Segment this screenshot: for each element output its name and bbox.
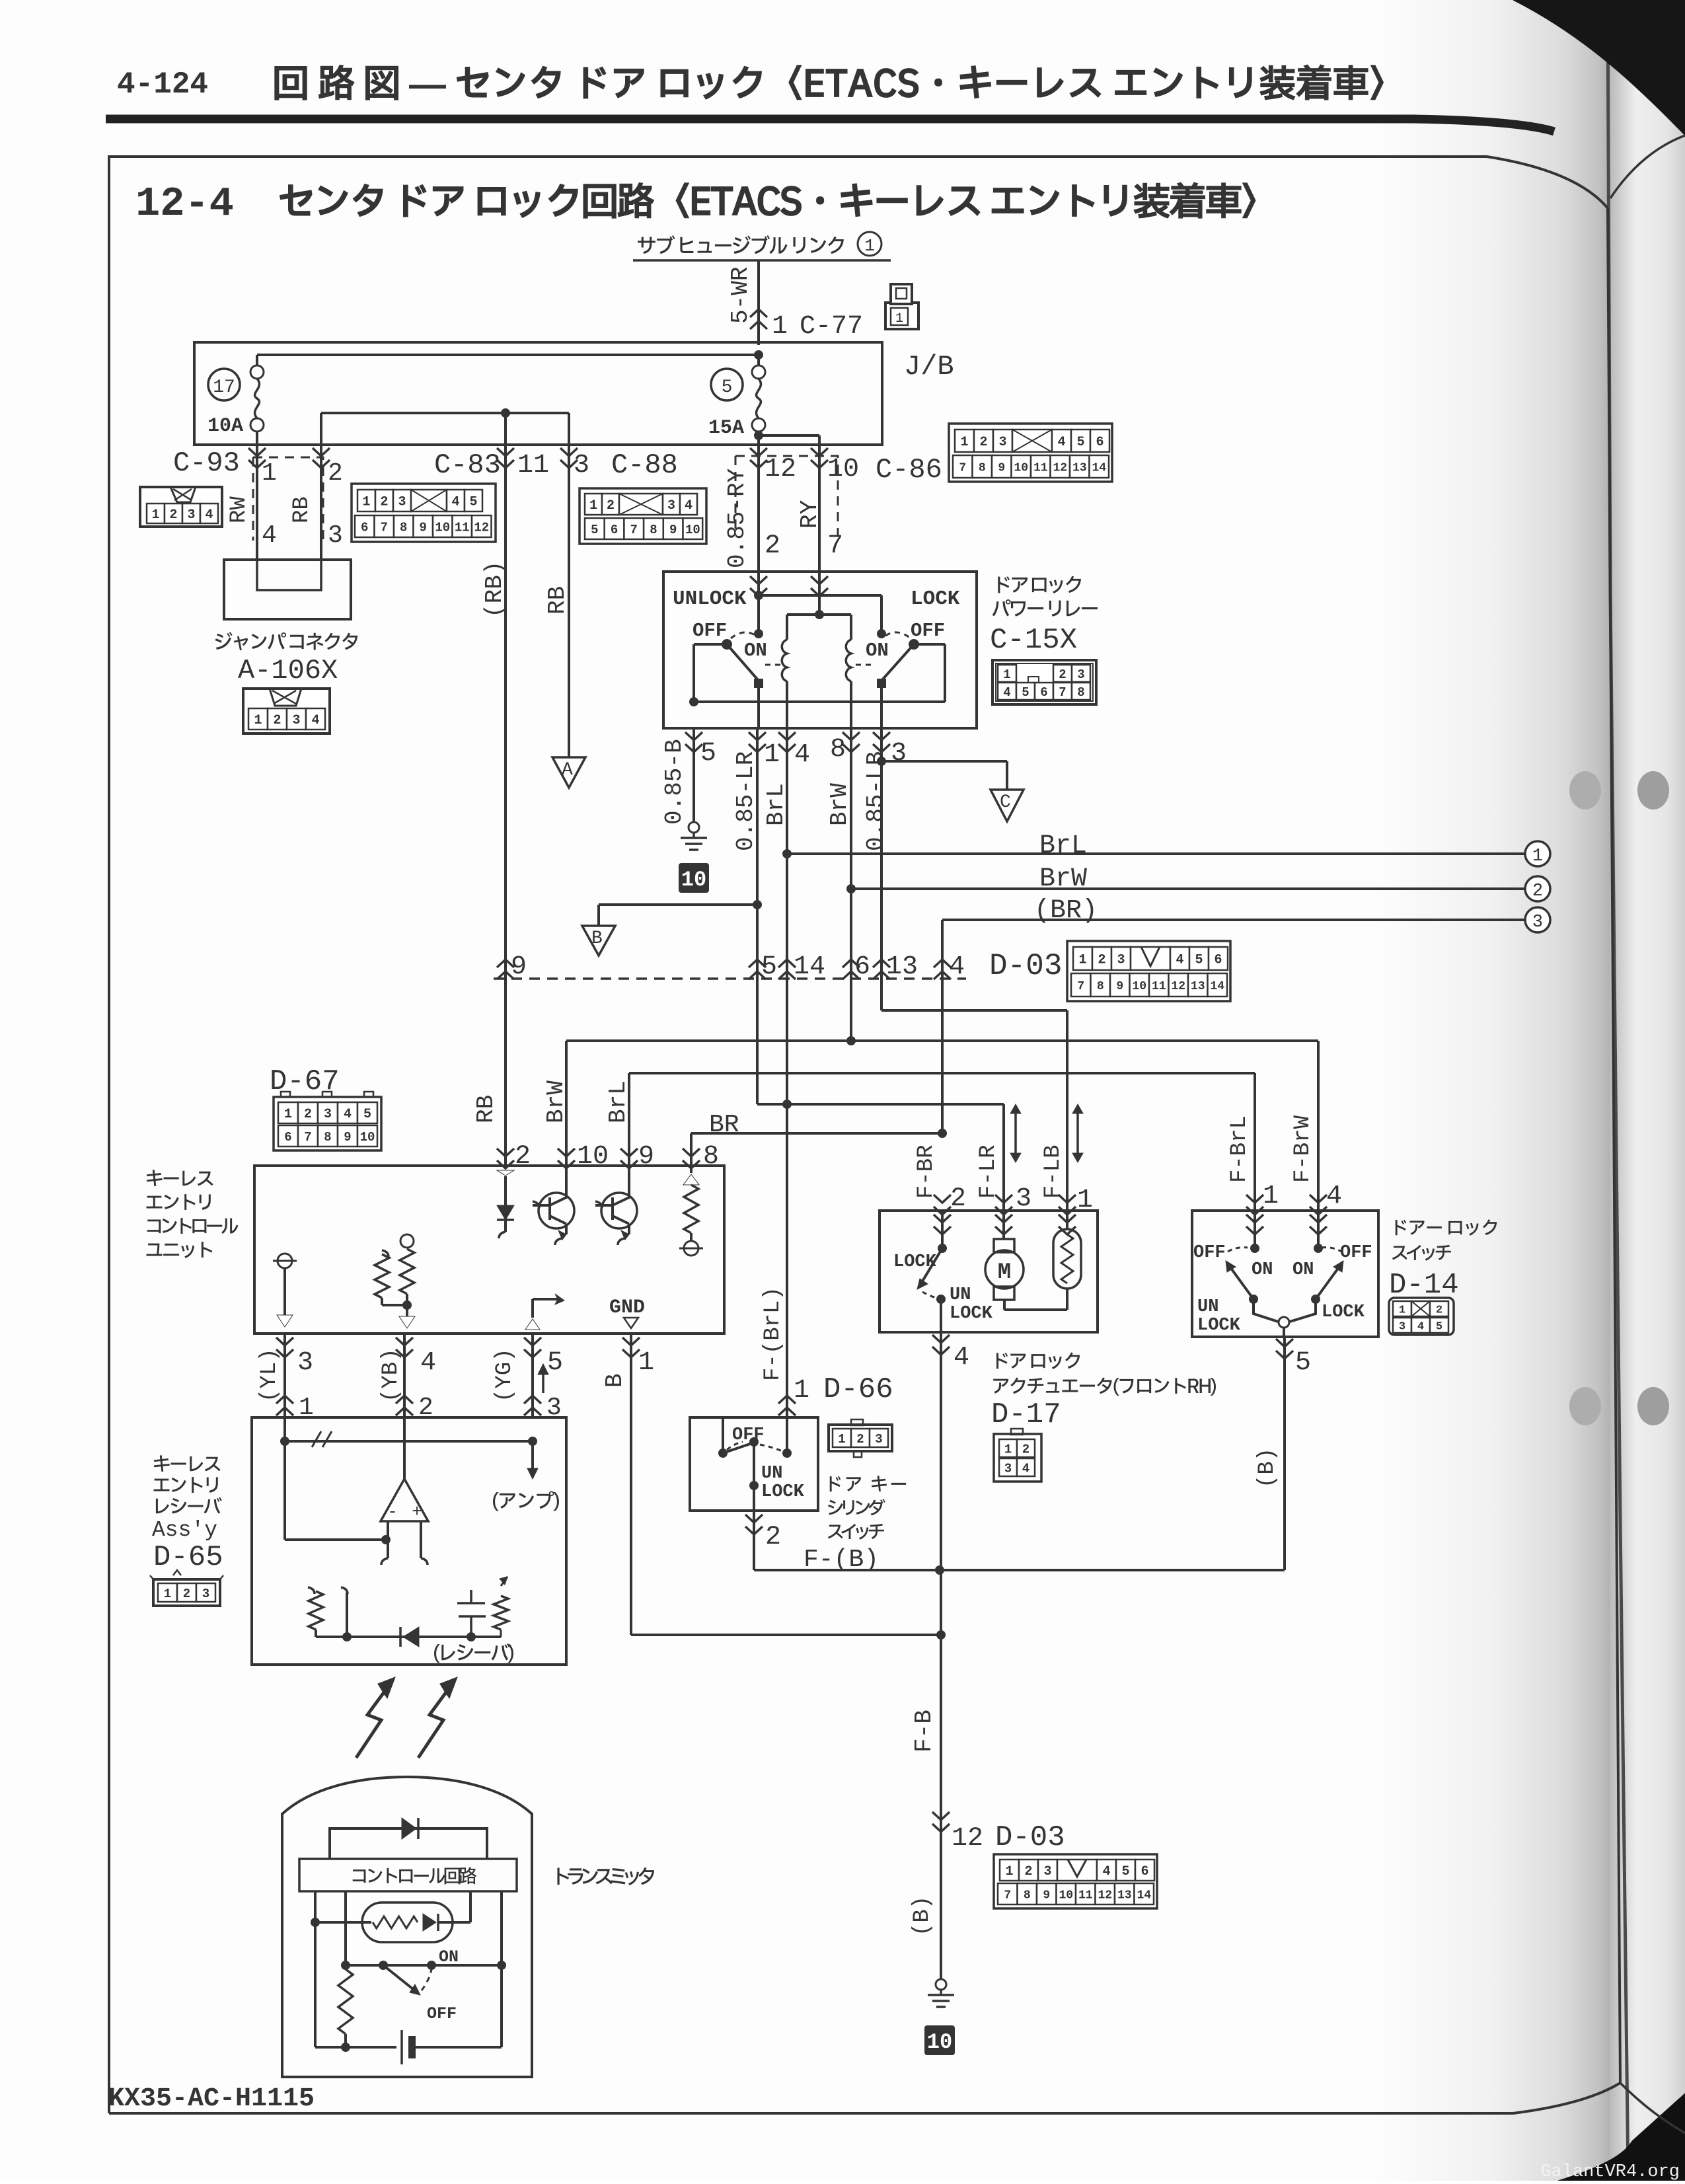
svg-text:13: 13	[1191, 980, 1205, 993]
svg-text:10: 10	[577, 1142, 609, 1172]
svg-text:0.85-RY: 0.85-RY	[724, 469, 751, 568]
svg-text:A: A	[562, 760, 573, 780]
svg-text:(BR): (BR)	[1034, 896, 1098, 926]
svg-text:ON: ON	[744, 640, 767, 661]
svg-text:2: 2	[328, 459, 343, 488]
svg-text:12: 12	[1053, 461, 1067, 474]
svg-text:8: 8	[650, 523, 657, 537]
svg-text:C-86: C-86	[876, 454, 942, 486]
svg-text:LOCK: LOCK	[893, 1252, 937, 1272]
svg-text:7: 7	[630, 523, 638, 537]
svg-text:9: 9	[420, 520, 427, 535]
svg-text:1: 1	[362, 495, 370, 510]
svg-text:C-83: C-83	[434, 449, 501, 481]
svg-text:LOCK: LOCK	[761, 1482, 805, 1502]
svg-text:1: 1	[1078, 953, 1086, 968]
svg-text:回 路 図 ― センタ ドア ロック〈ETACS・キーレス: 回 路 図 ― センタ ドア ロック〈ETACS・キーレス エントリ装着車〉	[272, 57, 1406, 113]
svg-text:12: 12	[952, 1824, 983, 1854]
svg-text:UNLOCK: UNLOCK	[673, 587, 747, 611]
svg-text:B: B	[601, 1373, 628, 1388]
svg-text:(YL): (YL)	[257, 1348, 282, 1402]
svg-text:9: 9	[344, 1130, 351, 1145]
svg-text:5: 5	[700, 739, 716, 769]
svg-text:UN: UN	[761, 1464, 782, 1484]
svg-text:5: 5	[1195, 953, 1203, 968]
svg-text:15A: 15A	[708, 417, 744, 439]
svg-text:14: 14	[1137, 1889, 1151, 1902]
svg-text:C: C	[1000, 792, 1011, 813]
svg-text:2: 2	[1059, 667, 1066, 682]
svg-text:13: 13	[1072, 461, 1087, 474]
svg-text:1: 1	[254, 713, 262, 728]
svg-text:RB: RB	[544, 586, 571, 615]
svg-text:パワー リレー: パワー リレー	[991, 595, 1100, 625]
svg-text:OFF: OFF	[911, 620, 945, 642]
svg-text:12: 12	[765, 455, 796, 484]
svg-text:1: 1	[960, 435, 968, 450]
svg-text:6: 6	[284, 1130, 291, 1145]
svg-text:3: 3	[328, 521, 343, 550]
svg-text:8: 8	[830, 735, 846, 765]
svg-text:7: 7	[959, 461, 966, 474]
svg-text:5: 5	[1076, 435, 1084, 450]
svg-text:3: 3	[297, 1348, 313, 1378]
svg-text:A-106X: A-106X	[238, 655, 338, 687]
svg-text:1: 1	[1005, 1864, 1013, 1879]
svg-text:5: 5	[722, 377, 733, 398]
svg-text:3: 3	[1117, 953, 1125, 968]
svg-text:1: 1	[764, 740, 780, 770]
svg-text:3: 3	[1532, 913, 1543, 932]
svg-text:1: 1	[838, 1432, 845, 1447]
svg-text:14: 14	[794, 952, 825, 982]
svg-text:(YG): (YG)	[492, 1348, 517, 1402]
svg-text:2: 2	[1098, 953, 1105, 968]
svg-text:BR: BR	[709, 1111, 739, 1139]
svg-text:5: 5	[1022, 685, 1029, 700]
svg-text:3: 3	[187, 508, 195, 523]
svg-text:2: 2	[380, 495, 388, 510]
svg-text:サブ ヒュージブル リンク: サブ ヒュージブル リンク	[636, 231, 846, 262]
svg-text:F-BrW: F-BrW	[1291, 1115, 1316, 1183]
svg-text:D-03: D-03	[995, 1821, 1065, 1854]
svg-text:LOCK: LOCK	[911, 587, 960, 611]
svg-text:4: 4	[794, 740, 810, 770]
svg-text:6: 6	[854, 952, 870, 982]
svg-text:M: M	[998, 1260, 1011, 1285]
svg-text:10: 10	[360, 1130, 375, 1145]
svg-text:OFF: OFF	[1340, 1243, 1372, 1263]
svg-text:10A: 10A	[207, 415, 243, 437]
svg-text:2: 2	[304, 1107, 312, 1122]
svg-text:10: 10	[1132, 980, 1146, 993]
svg-text:2: 2	[765, 531, 780, 561]
svg-text:ユニット: ユニット	[145, 1236, 215, 1265]
svg-text:トランスミッタ: トランスミッタ	[551, 1862, 657, 1893]
svg-text:F-B: F-B	[911, 1710, 938, 1752]
svg-text:2: 2	[765, 1523, 781, 1552]
svg-text:5: 5	[591, 523, 598, 537]
svg-text:4: 4	[954, 1343, 969, 1373]
svg-text:F-BrL: F-BrL	[1227, 1115, 1252, 1183]
svg-text:8: 8	[703, 1142, 719, 1172]
svg-text:4: 4	[205, 508, 213, 523]
svg-text:3: 3	[202, 1587, 209, 1601]
svg-text:ON: ON	[1252, 1260, 1273, 1280]
svg-text:3: 3	[998, 435, 1006, 450]
svg-text:11: 11	[517, 451, 549, 480]
svg-text:3: 3	[292, 713, 300, 728]
svg-text:UN: UN	[950, 1285, 971, 1305]
svg-text:1: 1	[1532, 847, 1543, 866]
svg-text:1: 1	[262, 459, 277, 488]
svg-text:スイッチ: スイッチ	[1390, 1240, 1452, 1268]
svg-text:LOCK: LOCK	[1322, 1302, 1365, 1322]
svg-text:4: 4	[949, 952, 965, 982]
svg-text:F-BR: F-BR	[914, 1145, 939, 1199]
svg-text:4: 4	[420, 1348, 436, 1378]
svg-text:F-(BrL): F-(BrL)	[761, 1287, 786, 1381]
svg-text:7: 7	[827, 531, 843, 561]
svg-text:OFF: OFF	[427, 2004, 457, 2023]
svg-text:2: 2	[1532, 882, 1543, 901]
svg-text:4: 4	[1326, 1182, 1342, 1211]
svg-text:2: 2	[1024, 1864, 1032, 1879]
svg-text:0.85-LB: 0.85-LB	[862, 751, 889, 851]
svg-text:2: 2	[856, 1432, 864, 1447]
svg-text:3: 3	[875, 1432, 882, 1447]
svg-text:Ass'y: Ass'y	[152, 1518, 217, 1542]
svg-text:4: 4	[311, 713, 319, 728]
svg-text:KX35-AC-H1115: KX35-AC-H1115	[108, 2084, 315, 2114]
svg-text:5: 5	[363, 1107, 371, 1122]
svg-text:F-(B): F-(B)	[804, 1546, 879, 1574]
svg-text:4: 4	[262, 521, 277, 550]
svg-text:C-93: C-93	[173, 447, 240, 479]
svg-text:BrL: BrL	[763, 783, 790, 826]
svg-text:3: 3	[1004, 1461, 1012, 1476]
svg-text:3: 3	[1043, 1864, 1051, 1879]
svg-text:BrW: BrW	[543, 1080, 570, 1123]
svg-text:14: 14	[1092, 461, 1106, 474]
svg-text:4: 4	[1102, 1864, 1110, 1879]
svg-text:8: 8	[1024, 1889, 1031, 1902]
svg-text:(アンプ): (アンプ)	[492, 1487, 560, 1517]
svg-text:7: 7	[1059, 685, 1066, 700]
svg-text:OFF: OFF	[1193, 1243, 1226, 1263]
svg-text:3: 3	[1399, 1321, 1405, 1334]
svg-text:3: 3	[398, 495, 406, 510]
svg-text:BrL: BrL	[1039, 831, 1087, 861]
svg-text:6: 6	[1096, 435, 1104, 450]
svg-text:BrL: BrL	[605, 1080, 632, 1123]
svg-text:5: 5	[547, 1348, 563, 1378]
svg-text:LOCK: LOCK	[950, 1304, 993, 1324]
svg-text:1: 1	[895, 311, 903, 326]
svg-text:アクチュエータ(フロントRH): アクチュエータ(フロントRH)	[991, 1373, 1217, 1402]
svg-text:(YB): (YB)	[379, 1348, 404, 1402]
svg-text:ジャンパ コネクタ: ジャンパ コネクタ	[213, 628, 360, 658]
svg-text:4-124: 4-124	[117, 67, 208, 102]
svg-text:10: 10	[1059, 1889, 1073, 1902]
svg-text:10: 10	[827, 455, 859, 484]
svg-text:6: 6	[1040, 685, 1047, 700]
svg-text:1: 1	[864, 236, 875, 256]
svg-text:1: 1	[164, 1587, 171, 1601]
svg-text:2: 2	[273, 713, 281, 728]
svg-text:12: 12	[474, 520, 489, 535]
svg-text:8: 8	[400, 520, 407, 535]
svg-text:11: 11	[1078, 1889, 1093, 1902]
svg-text:OFF: OFF	[693, 620, 727, 642]
svg-text:5: 5	[1121, 1864, 1129, 1879]
svg-text:3: 3	[891, 739, 907, 769]
svg-text:4: 4	[685, 498, 693, 513]
svg-text:センタ ドア ロック回路〈ETACS・キーレス エントリ装着: センタ ドア ロック回路〈ETACS・キーレス エントリ装着車〉	[278, 176, 1279, 232]
svg-text:C-15X: C-15X	[990, 624, 1077, 657]
svg-text:1: 1	[151, 508, 159, 523]
svg-text:12: 12	[1098, 1889, 1112, 1902]
svg-text:RB: RB	[289, 496, 315, 523]
svg-text:1: 1	[1004, 1442, 1012, 1456]
svg-text:8: 8	[324, 1130, 331, 1145]
svg-text:11: 11	[1152, 980, 1166, 993]
svg-text:4: 4	[1022, 1461, 1030, 1476]
svg-text:7: 7	[1077, 980, 1084, 993]
svg-text:D-03: D-03	[989, 949, 1062, 983]
svg-text:4: 4	[1176, 953, 1183, 968]
svg-text:9: 9	[998, 461, 1005, 474]
svg-text:7: 7	[304, 1130, 311, 1145]
svg-text:(RB): (RB)	[481, 561, 508, 618]
svg-text:1: 1	[1399, 1304, 1405, 1317]
svg-text:8: 8	[979, 461, 986, 474]
svg-text:7: 7	[381, 520, 388, 535]
svg-text:(B): (B)	[910, 1896, 935, 1936]
svg-text:5: 5	[469, 495, 477, 510]
svg-text:B: B	[591, 928, 603, 949]
svg-text:5: 5	[761, 952, 777, 982]
svg-text:F-LR: F-LR	[976, 1145, 1001, 1199]
svg-text:UN: UN	[1197, 1297, 1218, 1317]
svg-text:4: 4	[1057, 435, 1065, 450]
svg-text:コントロール回路: コントロール回路	[350, 1864, 477, 1891]
svg-text:3: 3	[1077, 667, 1084, 682]
svg-text:1: 1	[589, 498, 597, 513]
svg-text:+: +	[412, 1502, 422, 1522]
svg-text:J/B: J/B	[904, 351, 954, 383]
svg-text:(B): (B)	[1255, 1448, 1280, 1488]
svg-text:4: 4	[344, 1107, 352, 1122]
svg-text:5: 5	[1295, 1348, 1311, 1378]
svg-text:1: 1	[1263, 1182, 1279, 1211]
svg-text:RW: RW	[227, 496, 252, 523]
svg-text:4: 4	[1417, 1321, 1424, 1334]
svg-text:11: 11	[455, 520, 470, 535]
svg-text:14: 14	[1210, 980, 1224, 993]
svg-text:2: 2	[1436, 1304, 1442, 1317]
svg-text:9: 9	[669, 523, 677, 537]
svg-text:3: 3	[667, 498, 675, 513]
svg-text:D-65: D-65	[153, 1541, 223, 1574]
svg-text:2: 2	[607, 498, 615, 513]
svg-text:8: 8	[1097, 980, 1104, 993]
svg-text:RY: RY	[796, 500, 823, 529]
svg-text:12-4: 12-4	[135, 180, 234, 227]
svg-text:9: 9	[1116, 980, 1123, 993]
svg-text:4: 4	[451, 495, 459, 510]
svg-text:10: 10	[435, 520, 450, 535]
svg-text:6: 6	[611, 523, 618, 537]
svg-text:C-77: C-77	[800, 312, 863, 342]
svg-text:スイッチ: スイッチ	[826, 1519, 885, 1547]
svg-text:13: 13	[886, 952, 918, 982]
svg-text:13: 13	[1117, 1889, 1132, 1902]
svg-text:RB: RB	[472, 1095, 500, 1123]
svg-text:GalantVR4.org: GalantVR4.org	[1540, 2162, 1680, 2181]
svg-text:OFF: OFF	[732, 1425, 765, 1445]
svg-text:9: 9	[1043, 1889, 1050, 1902]
svg-text:6: 6	[1141, 1864, 1148, 1879]
svg-text:6: 6	[361, 520, 368, 535]
svg-text:2: 2	[183, 1587, 190, 1601]
svg-text:ON: ON	[1292, 1260, 1314, 1280]
svg-text:8: 8	[1077, 685, 1084, 700]
svg-text:BrW: BrW	[1039, 864, 1087, 894]
svg-text:D-17: D-17	[991, 1398, 1061, 1431]
svg-text:4: 4	[1003, 685, 1010, 700]
svg-text:10: 10	[1014, 461, 1028, 474]
svg-text:1: 1	[794, 1376, 809, 1406]
svg-text:0.85-LR: 0.85-LR	[732, 751, 759, 851]
svg-text:11: 11	[1033, 461, 1048, 474]
svg-text:12: 12	[1171, 980, 1185, 993]
svg-text:BrW: BrW	[826, 783, 853, 826]
svg-text:9: 9	[638, 1142, 654, 1172]
svg-text:LOCK: LOCK	[1197, 1316, 1241, 1336]
svg-text:1: 1	[284, 1107, 292, 1122]
svg-text:-: -	[387, 1502, 398, 1522]
svg-text:17: 17	[213, 377, 235, 398]
svg-text:D-66: D-66	[823, 1373, 893, 1406]
svg-text:1: 1	[1003, 667, 1010, 682]
svg-text:GND: GND	[609, 1297, 645, 1319]
svg-text:ドアー ロック: ドアー ロック	[1390, 1215, 1499, 1243]
svg-text:C-88: C-88	[611, 449, 678, 481]
svg-text:2: 2	[1022, 1442, 1030, 1456]
svg-text:ON: ON	[866, 640, 889, 661]
svg-text:ON: ON	[439, 1947, 459, 1967]
svg-text:0.85-B: 0.85-B	[661, 739, 688, 825]
svg-text:5-WR: 5-WR	[727, 267, 754, 324]
svg-text:(レシーバ): (レシーバ)	[433, 1639, 515, 1669]
svg-text:F-LB: F-LB	[1041, 1145, 1066, 1199]
svg-text:7: 7	[1004, 1889, 1011, 1902]
svg-text:3: 3	[324, 1107, 332, 1122]
svg-text:10: 10	[685, 523, 700, 537]
svg-text:1: 1	[638, 1348, 654, 1378]
svg-text:2: 2	[169, 508, 177, 523]
svg-text:2: 2	[515, 1142, 531, 1172]
svg-text:5: 5	[1436, 1321, 1442, 1334]
svg-text:1: 1	[772, 312, 788, 342]
svg-text:10: 10	[927, 2030, 952, 2054]
svg-text:3: 3	[574, 451, 589, 480]
svg-text:6: 6	[1214, 953, 1222, 968]
svg-text:9: 9	[511, 952, 527, 982]
svg-text:10: 10	[681, 868, 706, 892]
svg-text:2: 2	[979, 435, 987, 450]
